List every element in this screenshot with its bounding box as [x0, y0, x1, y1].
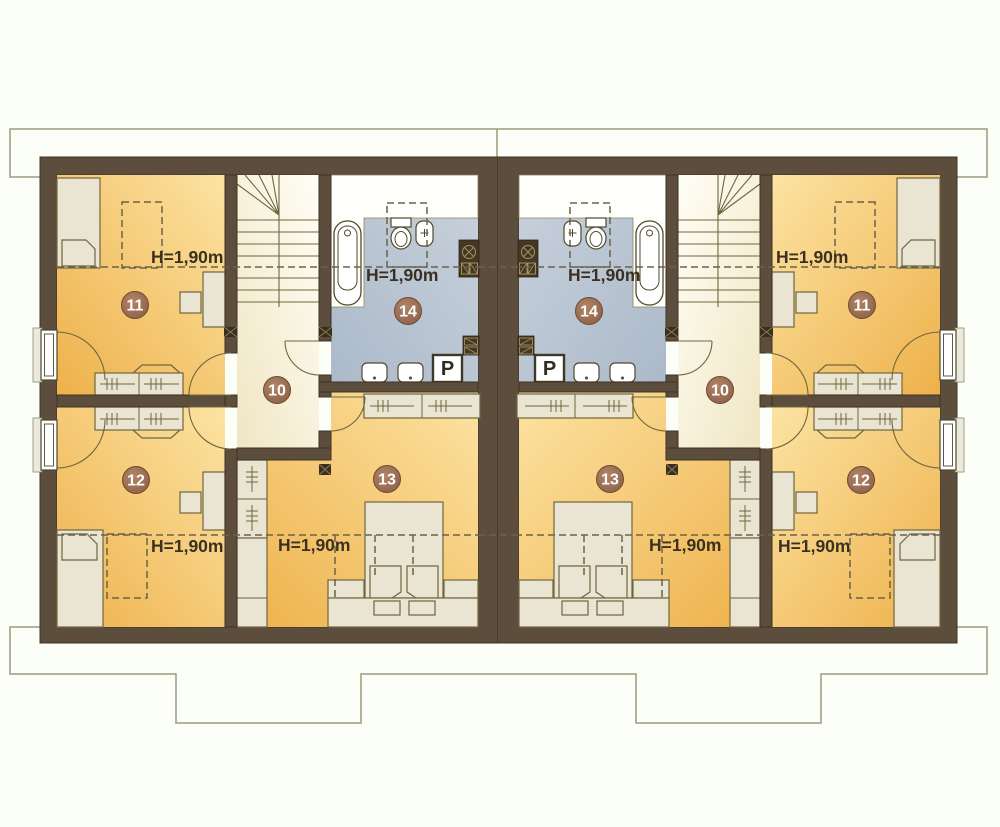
room-badge-13-right: 13 — [597, 466, 624, 493]
floor-plan: 11 10 14 13 12 11 10 14 — [0, 0, 1000, 827]
unit-left — [33, 175, 480, 627]
room-badge-12-right: 12 — [848, 467, 875, 494]
room-number: 14 — [580, 304, 598, 321]
height-label-room13-left: H=1,90m — [278, 535, 350, 555]
room-number: 11 — [854, 298, 871, 315]
room-badge-14-left: 14 — [395, 298, 422, 325]
washer-label-right: P — [543, 358, 556, 380]
room-badge-11-right: 11 — [849, 292, 876, 319]
height-label-room12-left: H=1,90m — [151, 536, 223, 556]
unit-right — [517, 175, 964, 627]
room-badge-12-left: 12 — [123, 467, 150, 494]
room-number: 12 — [852, 473, 870, 490]
height-label-bath-right: H=1,90m — [568, 265, 640, 285]
room-badge-10-right: 10 — [707, 377, 734, 404]
room-number: 11 — [127, 298, 144, 315]
height-label-room11-left: H=1,90m — [151, 247, 223, 267]
room-number: 10 — [268, 383, 286, 400]
floor-plan-canvas: 11 10 14 13 12 11 10 14 — [0, 0, 1000, 827]
room-number: 14 — [399, 304, 417, 321]
room-number: 10 — [711, 383, 729, 400]
height-label-room12-right: H=1,90m — [778, 536, 850, 556]
height-label-bath-left: H=1,90m — [366, 265, 438, 285]
height-label-room13-right: H=1,90m — [649, 535, 721, 555]
room-number: 13 — [378, 472, 396, 489]
room-badge-13-left: 13 — [374, 466, 401, 493]
room-badge-11-left: 11 — [122, 292, 149, 319]
room-badge-10-left: 10 — [264, 377, 291, 404]
room-number: 12 — [127, 473, 145, 490]
room-badge-14-right: 14 — [576, 298, 603, 325]
washer-label-left: P — [441, 358, 454, 380]
height-label-room11-right: H=1,90m — [776, 247, 848, 267]
room-number: 13 — [601, 472, 619, 489]
